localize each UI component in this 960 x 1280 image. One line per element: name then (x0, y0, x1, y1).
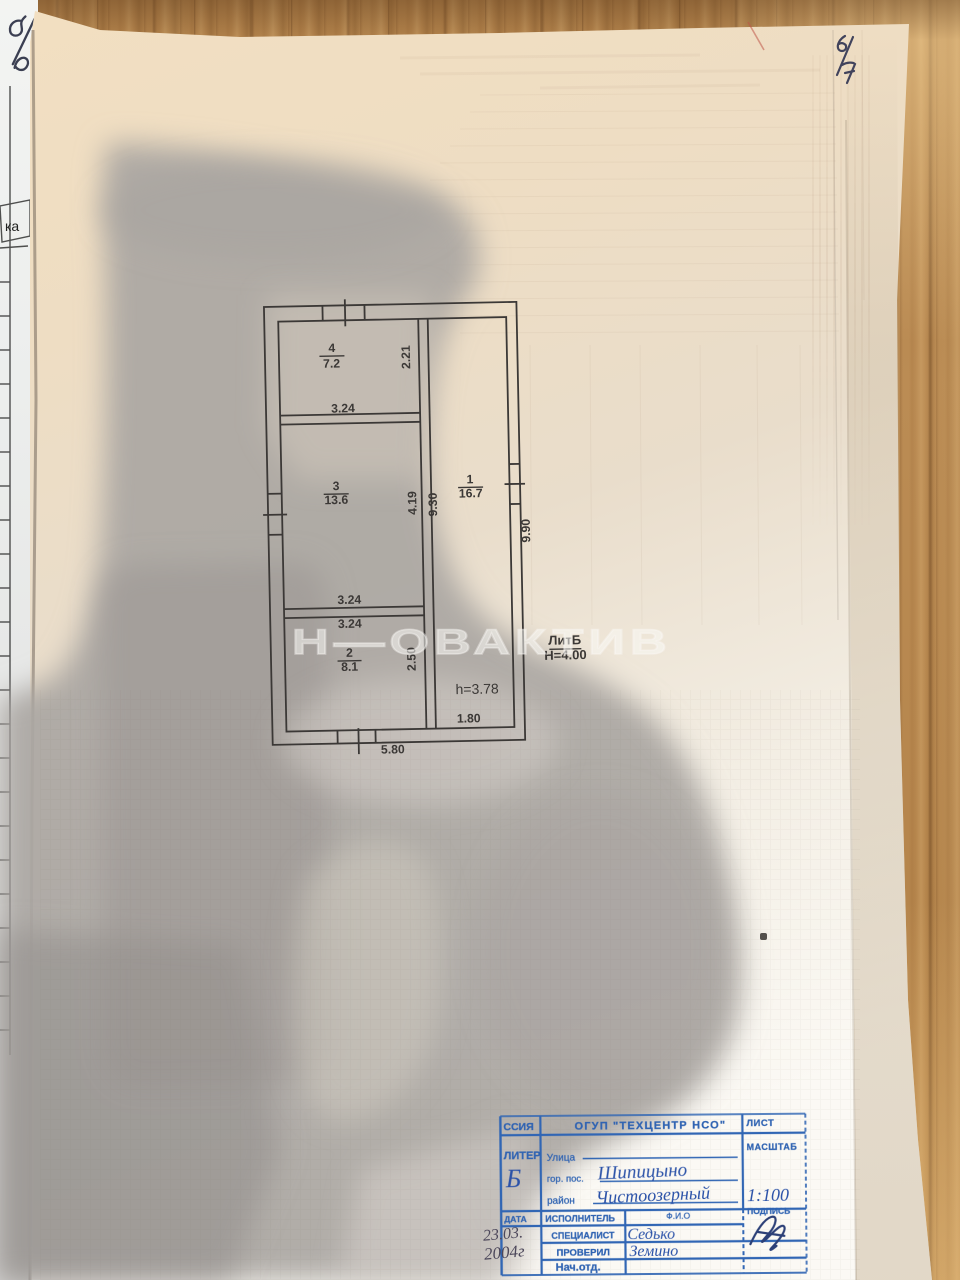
svg-text:ПРОВЕРИЛ: ПРОВЕРИЛ (556, 1247, 610, 1258)
svg-text:9.30: 9.30 (425, 492, 439, 516)
svg-text:1: 1 (466, 472, 473, 486)
svg-text:Ф.И.О: Ф.И.О (666, 1211, 690, 1221)
svg-text:5.80: 5.80 (380, 742, 404, 756)
svg-text:4.19: 4.19 (405, 490, 419, 514)
svg-text:ЛИТЕР: ЛИТЕР (504, 1150, 541, 1162)
svg-text:3: 3 (332, 478, 339, 492)
svg-text:7.2: 7.2 (322, 356, 339, 370)
svg-text:3.24: 3.24 (337, 592, 361, 606)
svg-text:3.24: 3.24 (330, 401, 354, 415)
svg-text:СПЕЦИАЛИСТ: СПЕЦИАЛИСТ (551, 1230, 615, 1241)
svg-text:2.21: 2.21 (398, 344, 412, 368)
svg-text:ДАТА: ДАТА (504, 1214, 527, 1224)
svg-text:район: район (547, 1196, 575, 1207)
svg-text:МАСШТАБ: МАСШТАБ (747, 1142, 798, 1152)
svg-text:ССИЯ: ССИЯ (503, 1121, 533, 1133)
svg-text:9.90: 9.90 (518, 518, 532, 542)
svg-text:1:100: 1:100 (747, 1185, 789, 1205)
svg-text:Седько: Седько (627, 1226, 675, 1243)
svg-text:Земино: Земино (629, 1243, 678, 1260)
svg-text:ЛИСТ: ЛИСТ (746, 1118, 774, 1129)
svg-text:4: 4 (328, 341, 335, 355)
svg-text:Шипицыно: Шипицыно (596, 1160, 687, 1185)
svg-text:Нач.отд.: Нач.отд. (556, 1261, 601, 1273)
svg-text:ИСПОЛНИТЕЛЬ: ИСПОЛНИТЕЛЬ (545, 1213, 615, 1224)
svg-text:Чистоозерный: Чистоозерный (595, 1182, 710, 1207)
svg-text:гор. пос.: гор. пос. (547, 1174, 584, 1185)
svg-text:Улица: Улица (547, 1153, 576, 1164)
svg-text:ПОДПИСЬ: ПОДПИСЬ (747, 1206, 790, 1216)
svg-text:h=3.78: h=3.78 (455, 680, 499, 697)
svg-text:1.80: 1.80 (456, 711, 480, 725)
svg-text:ОГУП "ТЕХЦЕНТР НСО": ОГУП "ТЕХЦЕНТР НСО" (574, 1119, 726, 1132)
svg-text:Б: Б (505, 1164, 522, 1193)
